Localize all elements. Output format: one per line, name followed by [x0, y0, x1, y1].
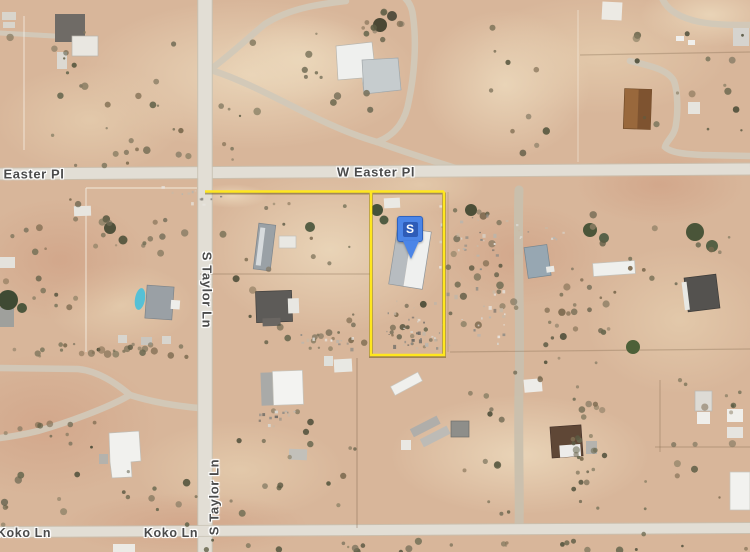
building-right-barn: [730, 472, 750, 510]
satellite-imagery: [0, 0, 750, 552]
satellite-map[interactable]: Easter Pl W Easter Pl S Taylor Ln S Tayl…: [0, 0, 750, 552]
road-koko: [0, 528, 750, 532]
building-bottom-center-house: [260, 370, 303, 405]
property-marker-box: S: [397, 216, 423, 242]
building-brown-barn: [623, 89, 651, 130]
property-marker-letter: S: [403, 222, 418, 237]
property-marker[interactable]: S: [397, 216, 424, 259]
road-easter-pl: [0, 169, 750, 174]
building-right-dark-house: [681, 274, 720, 312]
property-marker-tip: [403, 241, 419, 259]
